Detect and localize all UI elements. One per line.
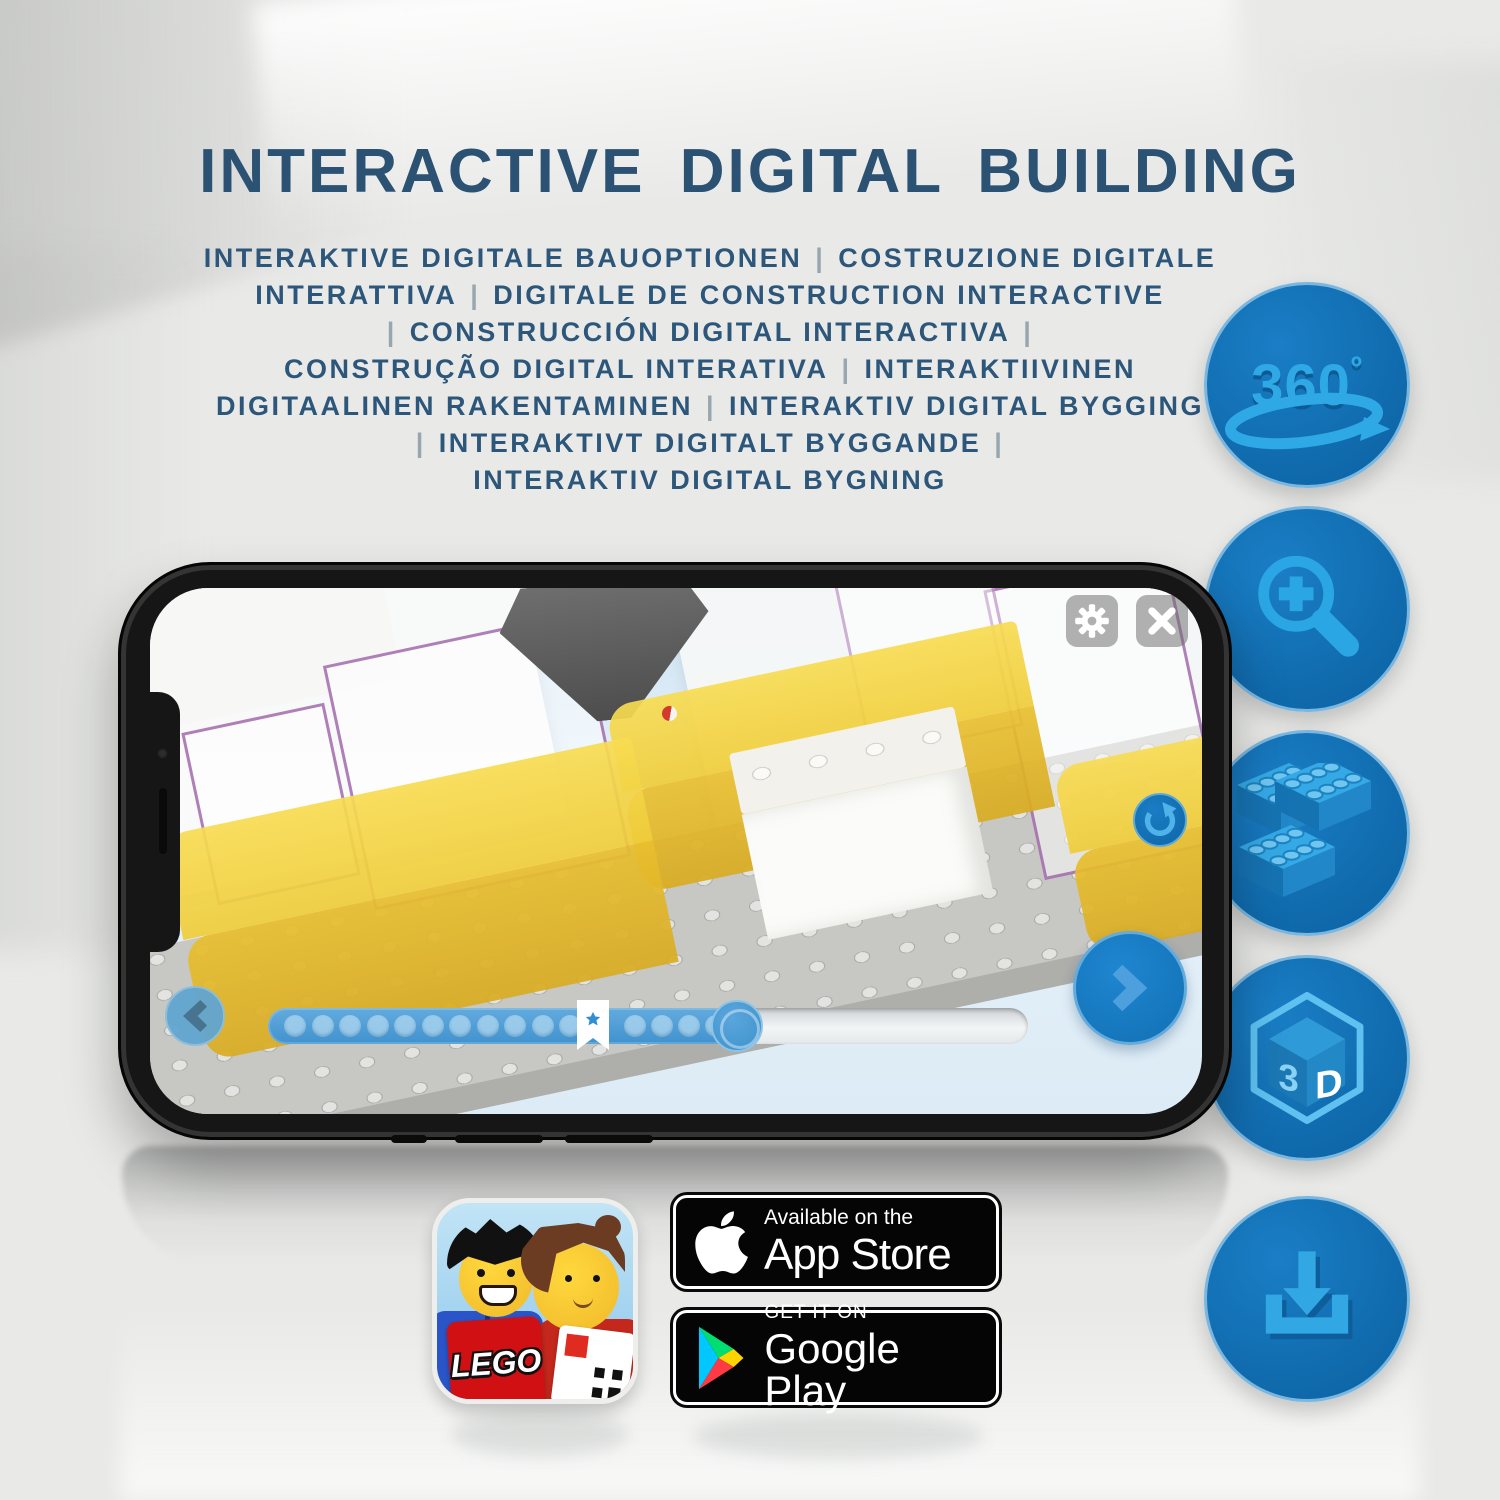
step-dot xyxy=(504,1015,526,1037)
close-icon xyxy=(1144,603,1180,639)
google-play-name: Google Play xyxy=(764,1328,980,1412)
back-button[interactable] xyxy=(165,986,225,1046)
step-dot xyxy=(394,1015,416,1037)
minifig-boy-grin xyxy=(479,1285,517,1306)
separator: | xyxy=(416,428,426,458)
lego-logo-text: LEGO xyxy=(449,1341,542,1384)
minifig-eye xyxy=(565,1275,572,1282)
separator: | xyxy=(815,243,825,273)
star-icon xyxy=(583,1010,603,1030)
google-play-badge[interactable]: GET IT ON Google Play xyxy=(673,1310,999,1405)
reflection xyxy=(693,1414,983,1458)
rotate-icon xyxy=(1139,799,1181,841)
phone-volume-button xyxy=(455,1135,543,1143)
app-screen xyxy=(150,588,1202,1114)
google-play-icon xyxy=(692,1321,750,1395)
qr-code xyxy=(591,1367,622,1400)
minifig-eye xyxy=(477,1269,485,1277)
separator: | xyxy=(841,354,851,384)
step-dot xyxy=(477,1015,499,1037)
settings-button[interactable] xyxy=(1066,595,1118,647)
cube-face-d: D xyxy=(1315,1060,1342,1108)
step-dot xyxy=(532,1015,554,1037)
zoom-in-icon xyxy=(1242,544,1372,674)
separator: | xyxy=(706,391,716,421)
feature-zoom xyxy=(1204,506,1410,712)
close-button[interactable] xyxy=(1136,595,1188,647)
phone-volume-button xyxy=(565,1135,653,1143)
reflection xyxy=(452,1412,628,1456)
camera-dot xyxy=(157,748,168,759)
step-dot xyxy=(367,1015,389,1037)
360-icon: 360º xyxy=(1222,351,1392,419)
subtitle-line: CONSTRUÇÃO DIGITAL INTERATIVA|INTERAKTII… xyxy=(150,351,1270,388)
gear-icon xyxy=(1072,601,1112,641)
feature-3d: 3 D xyxy=(1204,955,1410,1161)
rotation-swoosh-icon xyxy=(1222,391,1392,455)
next-button[interactable] xyxy=(1073,931,1187,1045)
minifig-girl-bun xyxy=(595,1215,621,1239)
phone xyxy=(118,562,1232,1140)
minifig-eye xyxy=(507,1269,515,1277)
subtitle-line: INTERAKTIV DIGITAL BYGNING xyxy=(150,462,1270,499)
3d-cube-icon: 3 D xyxy=(1239,990,1375,1126)
step-dot xyxy=(449,1015,471,1037)
card-red-square xyxy=(564,1334,589,1359)
subtitle-line: |CONSTRUCCIÓN DIGITAL INTERACTIVA| xyxy=(150,314,1270,351)
subtitle-line: INTERATTIVA|DIGITALE DE CONSTRUCTION INT… xyxy=(150,277,1270,314)
phone-side-button xyxy=(391,1135,427,1143)
app-store-badge[interactable]: Available on the App Store xyxy=(673,1195,999,1289)
separator: | xyxy=(470,280,480,310)
slider-handle[interactable] xyxy=(711,1000,763,1052)
chevron-left-icon xyxy=(178,996,212,1036)
feature-download xyxy=(1204,1196,1410,1402)
feature-360-rotation: 360º xyxy=(1204,282,1410,488)
chevron-right-icon xyxy=(1106,959,1154,1017)
rotate-button[interactable] xyxy=(1133,793,1187,847)
app-store-tagline: Available on the xyxy=(764,1207,951,1228)
step-dot xyxy=(422,1015,444,1037)
lego-app-icon[interactable]: LEGO xyxy=(432,1198,638,1404)
apple-icon xyxy=(692,1207,750,1277)
separator: | xyxy=(994,428,1004,458)
step-dot xyxy=(624,1015,646,1037)
subtitle-line: |INTERAKTIVT DIGITALT BYGGANDE| xyxy=(150,425,1270,462)
step-dot xyxy=(678,1015,700,1037)
step-dot xyxy=(651,1015,673,1037)
subtitle-line: DIGITAALINEN RAKENTAMINEN|INTERAKTIV DIG… xyxy=(150,388,1270,425)
slider-dots xyxy=(268,1008,1028,1044)
subtitle-line: INTERAKTIVE DIGITALE BAUOPTIONEN|COSTRUZ… xyxy=(150,240,1270,277)
feature-bricks xyxy=(1204,730,1410,936)
cube-face-3: 3 xyxy=(1278,1055,1298,1101)
lego-logo: LEGO xyxy=(446,1316,546,1404)
separator: | xyxy=(387,317,397,347)
download-icon xyxy=(1242,1234,1372,1364)
progress-slider-track[interactable] xyxy=(268,1008,1028,1044)
step-dot xyxy=(312,1015,334,1037)
brick-icon xyxy=(1237,763,1377,903)
step-dot xyxy=(284,1015,306,1037)
google-play-tagline: GET IT ON xyxy=(764,1303,980,1322)
page-title: INTERACTIVE DIGITAL BUILDING xyxy=(0,136,1500,207)
step-dot xyxy=(339,1015,361,1037)
poster: INTERACTIVE DIGITAL BUILDING INTERAKTIVE… xyxy=(0,0,1500,1500)
separator: | xyxy=(1023,317,1033,347)
speaker-slot xyxy=(159,788,167,854)
subtitle-block: INTERAKTIVE DIGITALE BAUOPTIONEN|COSTRUZ… xyxy=(150,240,1270,499)
tiny-minifigure xyxy=(662,706,677,721)
degree-symbol: º xyxy=(1351,351,1363,384)
minifig-eye xyxy=(593,1275,600,1282)
app-store-name: App Store xyxy=(764,1233,951,1277)
instruction-card xyxy=(551,1325,636,1404)
phone-notch xyxy=(150,692,180,952)
